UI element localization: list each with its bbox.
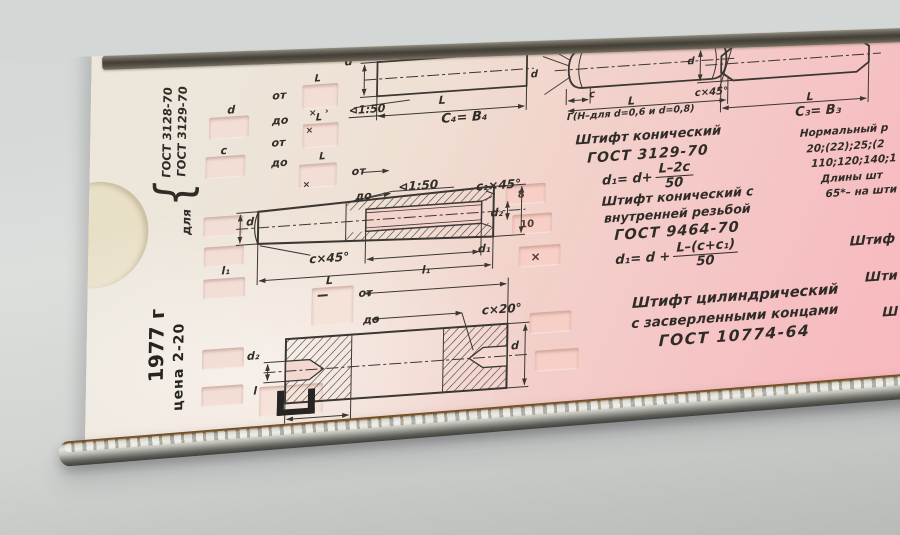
dim-l1-cone: l₁	[422, 263, 431, 277]
row-ot-1: от	[272, 89, 286, 103]
dim-do-drilled: до	[363, 313, 380, 327]
dim-cx45-chamfer-pin: c×45°	[695, 86, 728, 99]
row-do-1: до	[272, 113, 289, 127]
legend-gost-list: для { ГОСТ 3128-70 ГОСТ 3129-70	[138, 64, 211, 260]
dim-L-round-pin: L	[628, 94, 635, 108]
dim-cx45-cone: c×45°	[309, 250, 349, 267]
dim-ot-cone: от	[352, 164, 366, 178]
dim-c-round-pin: c	[589, 89, 595, 100]
window-range-b1	[302, 83, 338, 110]
dim-L-b3: L	[319, 151, 326, 162]
scale-label-l1: l₁	[221, 264, 230, 278]
dim-ot-drilled: от	[358, 286, 372, 300]
caption-c3-b3: C₃= B₃	[795, 102, 841, 120]
dim-L-taper-pin: L	[439, 93, 446, 107]
dim-L-b2: L	[316, 112, 323, 123]
dim-d-drilled: d	[511, 339, 519, 353]
window-value-10: 10	[520, 219, 534, 231]
right-edge-word-2: Шти	[865, 268, 898, 285]
scale-label-d2: d₂	[247, 349, 260, 363]
photo-of-slide-rule: для { ГОСТ 3128-70 ГОСТ 3129-70 1977 г ц…	[0, 0, 900, 535]
dim-d1-cone: d₁	[478, 242, 491, 256]
row-do-2: до	[271, 156, 288, 170]
dim-do-cone: до	[355, 189, 372, 203]
dim-d-chamfer-pin: d	[687, 56, 694, 68]
dim-d-cone: d	[246, 215, 254, 229]
formula-3129-lhs: d₁= d+	[602, 169, 653, 190]
slide-mark-3: ×	[306, 126, 314, 137]
dim-d2-cone: d₂	[490, 206, 503, 220]
right-column-text: Нормальный р 20;(22);25;(2 110;120;140;1…	[799, 120, 899, 205]
window-right-2	[535, 348, 579, 372]
slide-mark-4: ×	[303, 180, 311, 191]
right-edge-word-1: Штиф	[850, 231, 896, 249]
slide-print-fragment	[277, 388, 315, 416]
right-edge-word-3: Ш	[882, 304, 898, 320]
taper-symbol-1: ⊲1:50	[349, 102, 386, 119]
price-label: цена 2-20	[170, 311, 188, 423]
scale-label-c: c	[220, 144, 227, 158]
dim-L-cone: L	[326, 274, 333, 288]
dim-cx20-drilled: c×20°	[482, 301, 522, 318]
year-label: 1977 г	[143, 289, 169, 401]
row-ot-2: от	[271, 136, 285, 150]
legend-gost-3129: ГОСТ 3129-70	[174, 86, 191, 178]
window-value-cross: ×	[530, 249, 540, 264]
legend-gost-3128: ГОСТ 3128-70	[159, 87, 176, 179]
formula-9464-lhs: d₁= d +	[615, 248, 670, 269]
dim-d-round-pin: d	[531, 69, 538, 81]
scale-label-d: d	[227, 103, 235, 117]
caption-gost-10774: Штифт цилиндрический с засверленными кон…	[620, 280, 850, 355]
dim-L-b1: L	[314, 73, 321, 84]
taper-symbol-2: ⊲1:50	[398, 177, 438, 194]
slide-mark-2: ›	[325, 107, 329, 117]
caption-gost-9464: Штифт конический с внутренней резьбой ГО…	[564, 181, 790, 279]
window-value-8: 8	[518, 189, 525, 201]
scale-label-l: l	[253, 384, 257, 397]
dim-L-chamfer-pin: L	[806, 90, 813, 104]
window-scale-d	[209, 115, 249, 140]
caption-c4-b4: C₄= B₄	[441, 109, 487, 127]
legend-prefix: для	[179, 209, 193, 236]
